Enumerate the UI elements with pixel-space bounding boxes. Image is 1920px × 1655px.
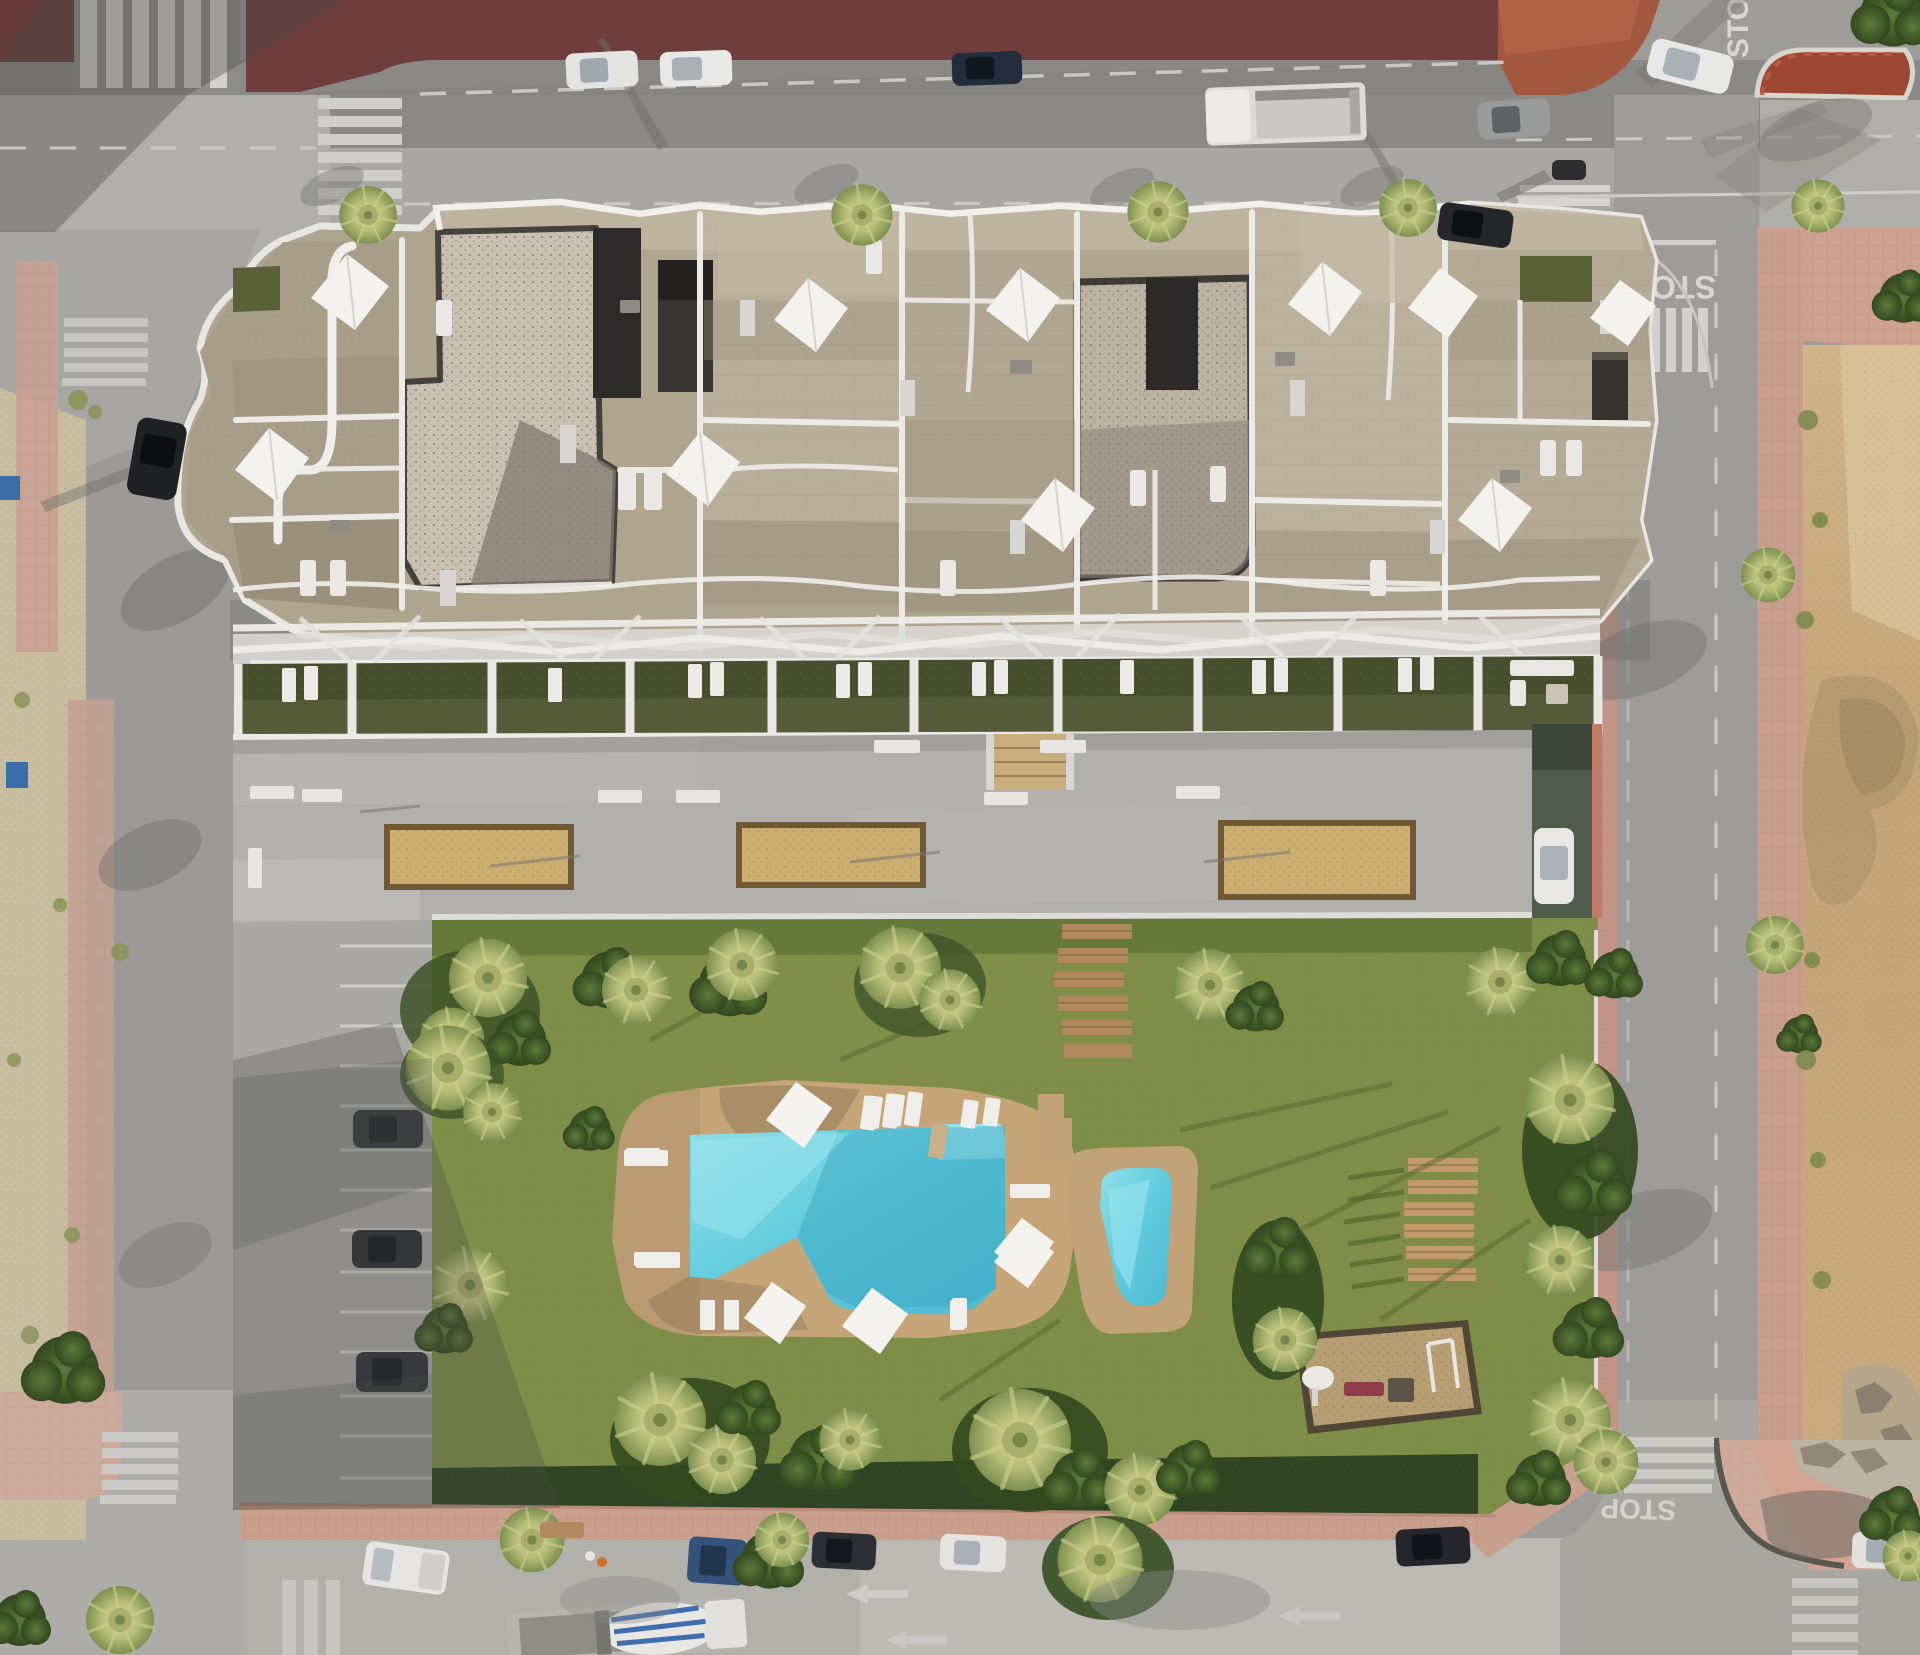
svg-text:STOP: STOP [1600,1492,1677,1526]
